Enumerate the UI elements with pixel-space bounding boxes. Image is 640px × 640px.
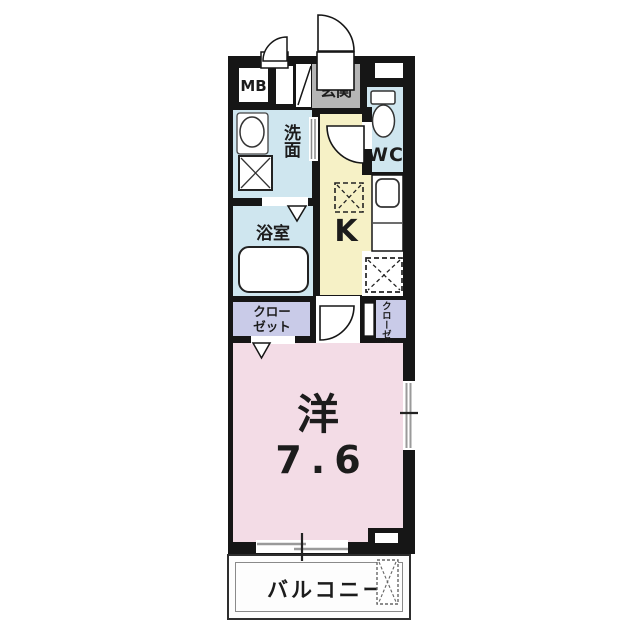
wall-niche: [375, 63, 403, 78]
wall-niche: [276, 66, 293, 104]
washroom-room: 洗面: [233, 110, 312, 198]
main-room-door-area: [316, 296, 360, 343]
entrance-label: 玄関: [312, 77, 360, 101]
kitchen-label: K: [320, 214, 372, 249]
toilet-room: WC: [367, 87, 403, 172]
closet-right-room: クローゼット: [376, 300, 406, 338]
closet-left-label: クローゼット: [248, 304, 296, 334]
entrance-step-area: [296, 64, 311, 107]
bathroom-label: 浴室: [233, 219, 313, 244]
balcony-label: バルコニー: [267, 574, 387, 604]
main-room-size-label: 7.6: [233, 438, 403, 482]
balcony-room: バルコニー: [227, 554, 411, 620]
closet-left-room: クローゼット: [233, 302, 310, 336]
appliance-area: [362, 251, 403, 296]
meter-box-room: MB: [237, 66, 270, 104]
closet-right-label: クローゼット: [378, 301, 391, 337]
wall-step-niche: [375, 533, 398, 543]
entrance-room: 玄関: [312, 64, 360, 108]
toilet-label: WC: [367, 144, 403, 166]
bathroom-room: 浴室: [233, 206, 313, 296]
main-room: 洋 7.6: [233, 343, 403, 542]
floor-plan: MB 玄関 WC 洗面 浴室 K クローゼット クローゼット 洋 7.6: [0, 0, 640, 640]
meter-box-label: MB: [239, 77, 268, 95]
washroom-label: 洗面: [278, 124, 303, 158]
doorway-gap: [362, 122, 372, 149]
main-room-label: 洋: [233, 381, 403, 442]
